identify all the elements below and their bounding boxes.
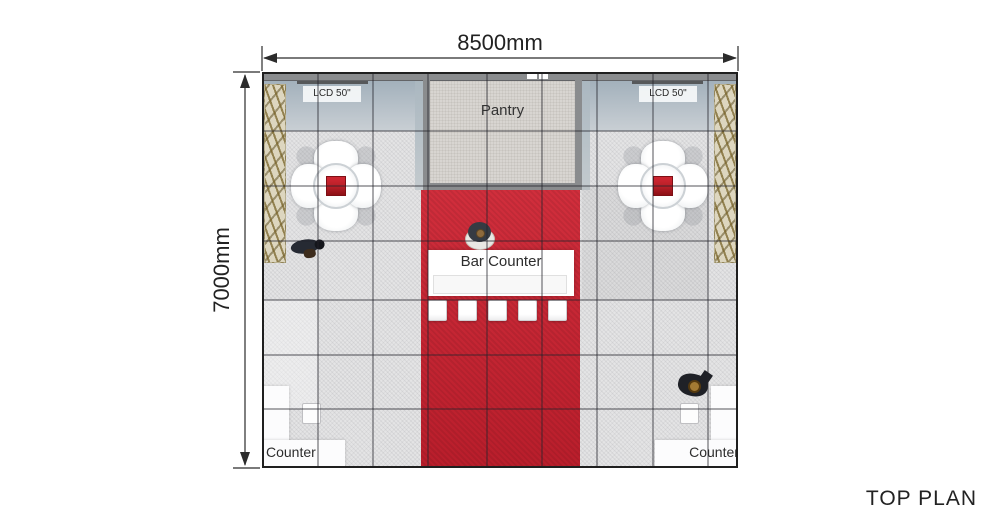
bar-stool	[428, 300, 447, 321]
bar-stool	[488, 300, 507, 321]
person-bag	[303, 248, 316, 259]
bar-counter-label: Bar Counter	[428, 253, 574, 270]
bar-counter: Bar Counter	[428, 250, 574, 296]
person-figure	[465, 220, 495, 254]
bar-stool	[458, 300, 477, 321]
width-dimension-label: 8500mm	[430, 30, 570, 56]
pantry-label: Pantry	[430, 102, 575, 119]
counter-label-left: Counter	[266, 444, 344, 460]
person-head	[476, 229, 485, 238]
pantry-side-glass-right	[582, 80, 590, 190]
pantry-wall-right	[575, 72, 582, 190]
height-dimension-label: 7000mm	[209, 200, 233, 340]
lcd-screen-right	[632, 81, 703, 84]
red-table-top	[653, 176, 673, 196]
lcd-label-left: LCD 50"	[303, 86, 361, 102]
person-figure	[676, 372, 712, 402]
back-wall	[262, 72, 738, 81]
counter-stool	[302, 403, 321, 424]
lcd-label-right: LCD 50"	[639, 86, 697, 102]
person-head	[314, 239, 325, 250]
person-head	[688, 380, 701, 393]
pantry-wall-left	[423, 72, 430, 190]
planter-right	[714, 84, 736, 263]
wall-light-mark	[539, 73, 548, 79]
seating-cluster-left	[286, 136, 386, 236]
seating-cluster-right	[613, 136, 713, 236]
page-title: TOP PLAN	[830, 487, 977, 511]
planter-left	[264, 84, 286, 263]
person-figure	[290, 234, 329, 263]
red-carpet	[421, 190, 580, 468]
bar-counter-top	[433, 275, 567, 294]
pantry-side-glass-left	[415, 80, 423, 190]
lcd-screen-left	[297, 81, 368, 84]
pantry-wall-bottom	[423, 183, 582, 190]
top-plan-canvas: 8500mm 7000mm Pantry	[0, 0, 1000, 527]
floor-plan: Pantry LCD 50" LCD 50"	[262, 72, 738, 468]
wall-light-mark	[527, 73, 537, 79]
counter-stool	[680, 403, 699, 424]
counter-label-right: Counter	[675, 444, 738, 460]
red-table-top	[326, 176, 346, 196]
bar-stool	[548, 300, 567, 321]
bar-stool	[518, 300, 537, 321]
pantry-room	[430, 80, 575, 190]
